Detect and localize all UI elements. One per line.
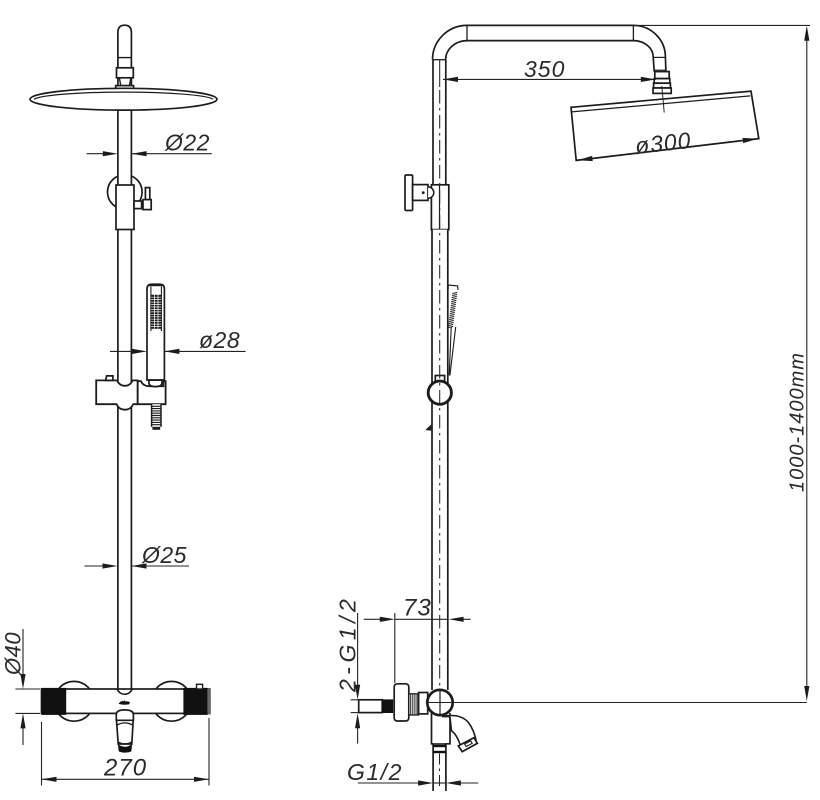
svg-text:2-G1/2: 2-G1/2 — [335, 595, 361, 693]
svg-text:Ø40: Ø40 — [1, 632, 26, 676]
svg-text:Ø25: Ø25 — [141, 542, 187, 568]
svg-text:1000-1400mm: 1000-1400mm — [787, 352, 809, 492]
svg-text:350: 350 — [524, 56, 565, 82]
svg-text:G1/2: G1/2 — [347, 759, 403, 785]
svg-text:ø28: ø28 — [199, 327, 240, 353]
svg-text:73: 73 — [403, 595, 432, 622]
svg-text:270: 270 — [103, 755, 147, 782]
svg-text:Ø22: Ø22 — [164, 130, 210, 156]
